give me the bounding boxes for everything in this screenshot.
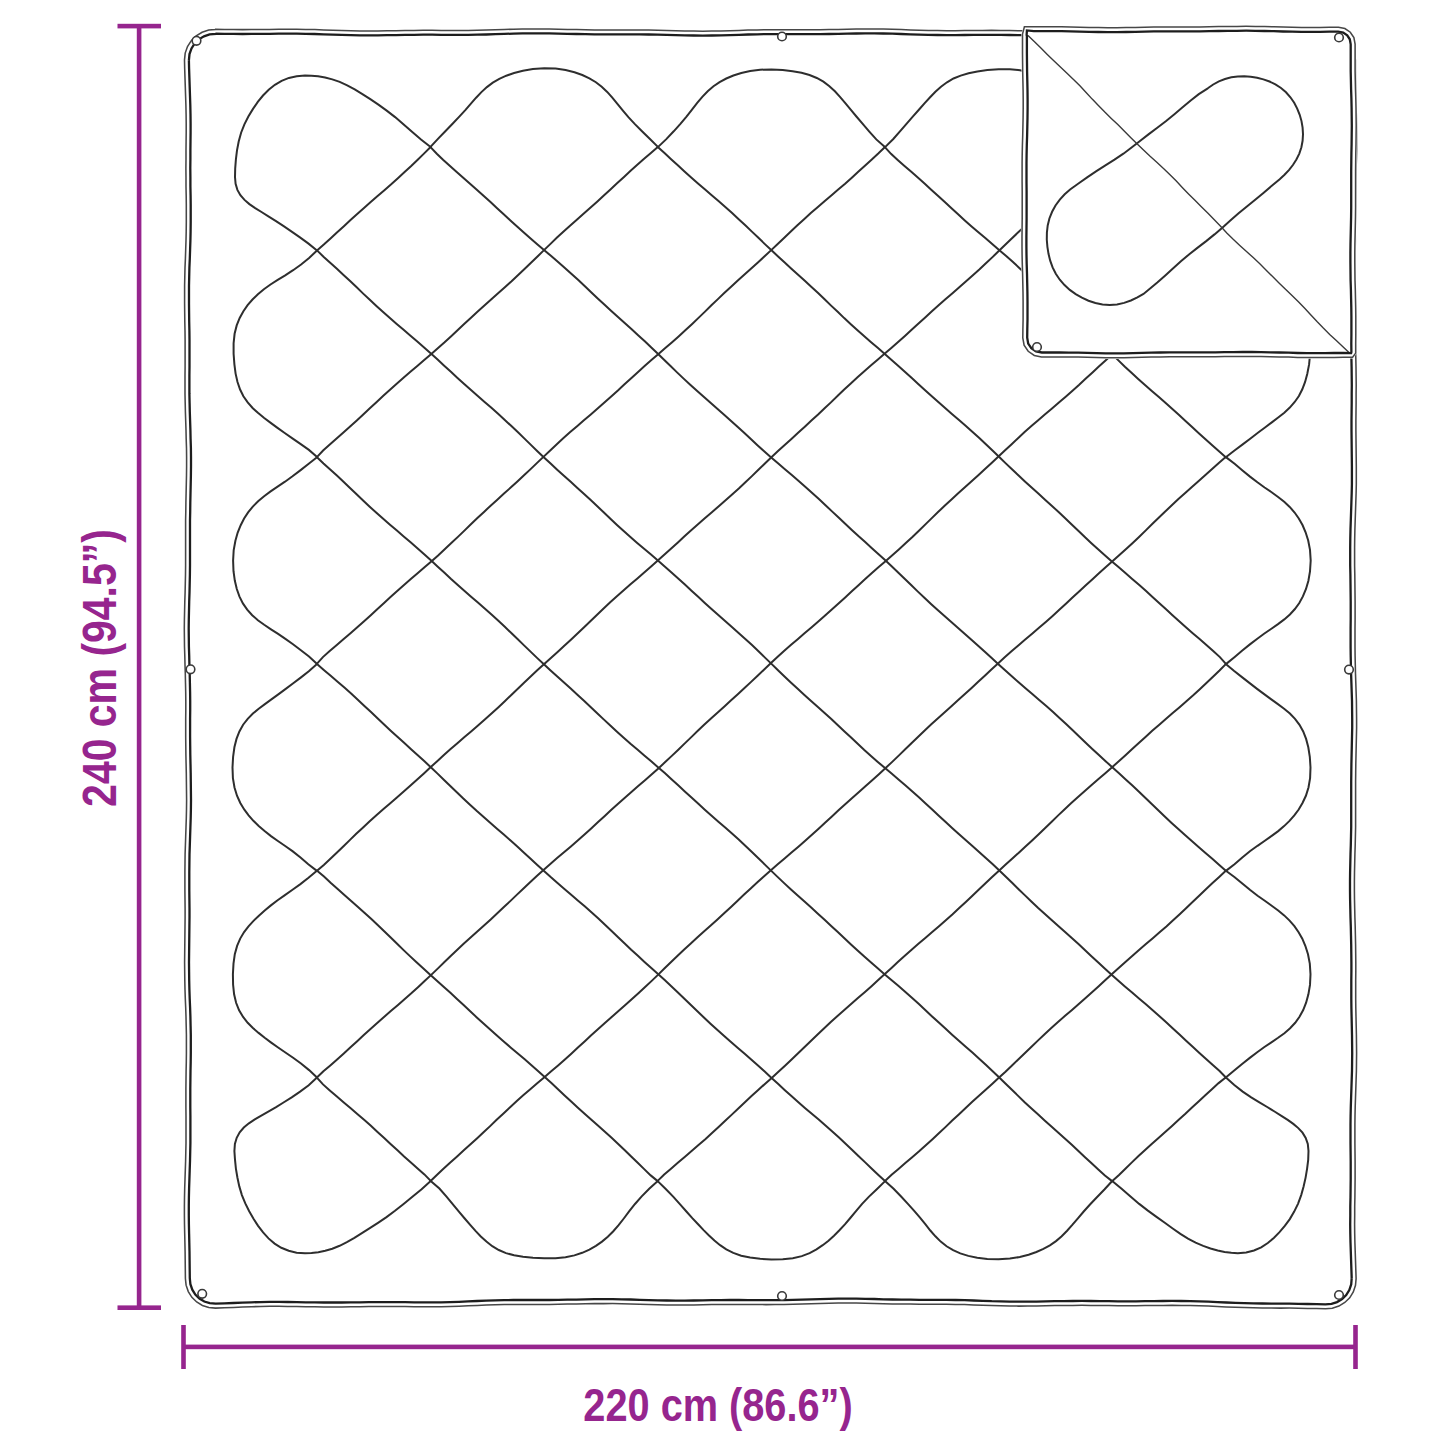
svg-text:220 cm (86.6”): 220 cm (86.6”) <box>583 1378 852 1430</box>
svg-text:240 cm (94.5”): 240 cm (94.5”) <box>71 529 126 807</box>
